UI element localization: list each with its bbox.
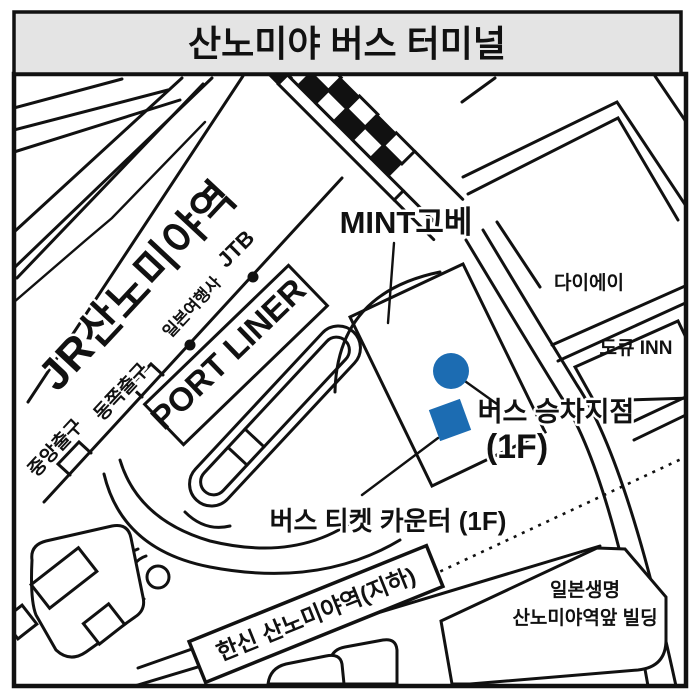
- street-stub: [462, 78, 495, 102]
- sannomiya-bus-terminal-map: 한신 산노미야역(지하) JR산노미야역 일본여행사 JTB 동쪽출구 중앙출구…: [0, 0, 695, 698]
- nippon-life-label-1: 일본생명: [550, 579, 620, 601]
- tokyu-inn-label: 도큐 INN: [600, 338, 673, 359]
- ticket-counter-label: 버스 티켓 카운터 (1F): [270, 506, 507, 536]
- nippon-life-label-2: 산노미야역앞 빌딩: [512, 607, 657, 629]
- bus-boarding-marker-circle: [433, 353, 469, 389]
- map-canvas: 한신 산노미야역(지하) JR산노미야역 일본여행사 JTB 동쪽출구 중앙출구…: [0, 0, 695, 698]
- page-title: 산노미야 버스 터미널: [188, 23, 506, 64]
- map-art: 한신 산노미야역(지하) JR산노미야역 일본여행사 JTB 동쪽출구 중앙출구…: [3, 17, 695, 688]
- daiei-label: 다이에이: [554, 272, 624, 294]
- bus-boarding-label: 버스 승차지점: [478, 397, 635, 427]
- roundabout: [147, 566, 169, 588]
- jtb-dot: [248, 272, 259, 283]
- central-exit-label: 중앙출구: [24, 415, 88, 481]
- bottom-left-blocks: [3, 526, 143, 658]
- bus-boarding-floor-label: (1F): [486, 428, 548, 466]
- travel-agency-dot: [185, 340, 196, 351]
- small-block-b: [268, 655, 344, 684]
- mint-kobe-label: MINT고베: [340, 205, 473, 240]
- street-top-right: [463, 76, 695, 220]
- tokyu-inn-building: [575, 321, 693, 401]
